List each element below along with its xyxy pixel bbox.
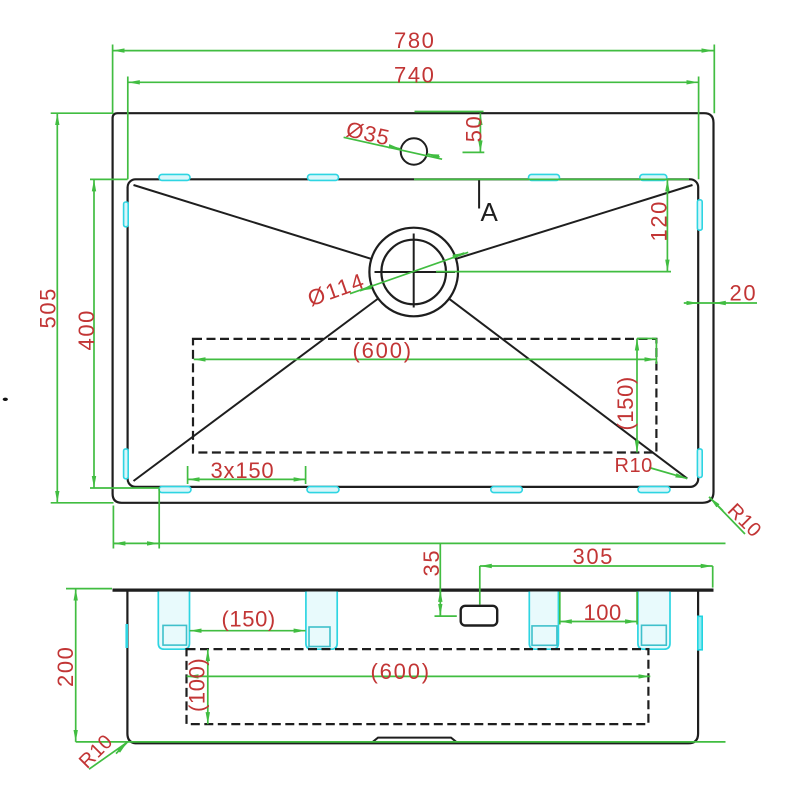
svg-text:3x150: 3x150 [211, 458, 275, 483]
svg-text:R10: R10 [75, 730, 118, 773]
svg-text:R10: R10 [723, 499, 766, 542]
svg-text:505: 505 [35, 287, 60, 329]
svg-text:Ø114: Ø114 [304, 268, 368, 311]
svg-text:780: 780 [394, 28, 436, 53]
svg-text:(100): (100) [185, 658, 210, 712]
svg-text:A: A [481, 197, 500, 227]
svg-text:50: 50 [461, 115, 486, 143]
svg-text:100: 100 [584, 600, 622, 625]
svg-text:(600): (600) [353, 338, 413, 363]
svg-text:305: 305 [573, 544, 615, 569]
svg-text:200: 200 [53, 645, 78, 687]
svg-text:400: 400 [74, 309, 99, 351]
svg-text:(150): (150) [222, 607, 276, 632]
svg-text:(600): (600) [371, 659, 431, 684]
svg-text:120: 120 [647, 200, 672, 242]
svg-text:20: 20 [730, 280, 758, 305]
svg-text:35: 35 [419, 549, 444, 577]
svg-text:Ø35: Ø35 [344, 116, 392, 150]
svg-text:(150): (150) [613, 376, 638, 430]
svg-text:R10: R10 [615, 455, 653, 477]
svg-text:740: 740 [394, 62, 436, 87]
